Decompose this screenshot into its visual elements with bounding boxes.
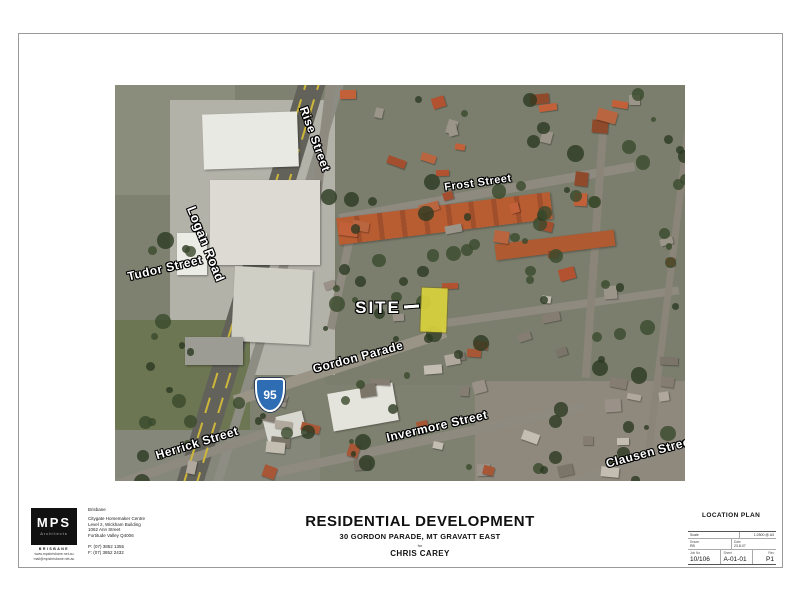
map-tree <box>540 466 548 474</box>
date-value: 23.8.07 <box>734 544 774 548</box>
drawn-date-row: Drawn RB Date 23.8.07 <box>688 539 776 550</box>
map-tree <box>260 413 266 419</box>
sheet-label: Sheet <box>723 551 750 555</box>
map-tree <box>564 187 570 193</box>
drawing-name: LOCATION PLAN <box>702 512 776 519</box>
scale-label: Scale <box>688 532 740 538</box>
mps-logo: MPS Architects <box>31 508 77 545</box>
map-building <box>202 111 299 169</box>
map-tree <box>522 238 528 244</box>
map-tree <box>680 174 685 185</box>
map-tree <box>172 394 186 408</box>
map-tree <box>184 415 197 428</box>
map-tree <box>151 333 158 340</box>
map-tree <box>666 243 672 249</box>
map-tree <box>281 427 293 439</box>
map-tree <box>301 425 315 439</box>
map-tree <box>323 326 328 331</box>
map-tree <box>148 418 155 425</box>
map-tree <box>137 450 149 462</box>
map-house <box>660 376 675 388</box>
map-house <box>575 172 589 187</box>
scale-value: 1:2500 @ A3 <box>740 532 776 538</box>
scale-row: Scale 1:2500 @ A3 <box>688 532 776 539</box>
site-label: SITE <box>355 298 401 318</box>
map-tree <box>640 320 655 335</box>
map-tree <box>148 246 157 255</box>
map-tree <box>516 181 526 191</box>
map-tree <box>356 380 365 389</box>
map-house <box>265 441 285 454</box>
map-tree <box>424 174 440 190</box>
project-for-label: for <box>270 543 570 548</box>
map-tree <box>339 264 350 275</box>
map-tree <box>636 155 651 170</box>
map-tree <box>157 232 174 249</box>
map-tree <box>526 276 534 284</box>
map-tree <box>446 246 461 261</box>
job-value: 10/106 <box>690 556 718 563</box>
rev-cell: Rev P1 <box>753 550 776 564</box>
map-tree <box>417 266 429 278</box>
drawn-cell: Drawn RB <box>688 539 732 549</box>
job-label: Job No <box>690 551 718 555</box>
map-tree <box>355 276 366 287</box>
job-sheet-rev-row: Job No 10/106 Sheet A-01-01 Rev P1 <box>688 550 776 564</box>
firm-web-line1: www.mpsbrisbane.net.au <box>26 552 82 557</box>
map-tree <box>622 140 636 154</box>
map-house <box>605 398 622 412</box>
map-tree <box>651 117 656 122</box>
drawing-info-block: LOCATION PLAN Scale 1:2500 @ A3 Drawn RB… <box>688 512 776 565</box>
rev-label: Rev <box>755 551 774 555</box>
sheet-cell: Sheet A-01-01 <box>721 550 753 564</box>
drawn-value: RB <box>690 544 729 548</box>
route-number-label: 95 <box>263 388 276 402</box>
job-cell: Job No 10/106 <box>688 550 721 564</box>
firm-web-lines: www.mpsbrisbane.net.au mail@mpsbrisbane.… <box>26 552 82 561</box>
map-house <box>339 90 355 99</box>
firm-fax: F: (07) 3852 2432 <box>88 550 145 556</box>
firm-web-line2: mail@mpsbrisbane.net.au <box>26 557 82 562</box>
site-highlight <box>420 288 448 333</box>
map-tree <box>355 434 371 450</box>
map-tree <box>454 350 463 359</box>
firm-address-line1: Citygate Homemaker Centre <box>88 516 145 522</box>
map-tree <box>664 135 673 144</box>
route-95-shield: 95 <box>255 378 285 412</box>
map-tree <box>525 266 535 276</box>
project-title-block: RESIDENTIAL DEVELOPMENT 30 GORDON PARADE… <box>270 513 570 558</box>
sheet-value: A-01-01 <box>723 556 750 563</box>
map-tree <box>329 296 345 312</box>
rev-value: P1 <box>755 556 774 563</box>
project-client: CHRIS CAREY <box>270 549 570 558</box>
drawing-info-table: Scale 1:2500 @ A3 Drawn RB Date 23.8.07 … <box>688 531 776 565</box>
map-building <box>210 180 320 265</box>
mps-logo-caption: BRISBANE <box>28 547 80 551</box>
map-house <box>659 391 670 401</box>
firm-office: Brisbane <box>88 507 145 513</box>
aerial-map: 95 Rise Street Frost Street Logan Road T… <box>115 85 685 481</box>
drawing-sheet: 95 Rise Street Frost Street Logan Road T… <box>0 0 800 600</box>
project-address: 30 GORDON PARADE, MT GRAVATT EAST <box>270 532 570 541</box>
map-tree <box>631 476 640 481</box>
map-tree <box>614 328 626 340</box>
map-tree <box>233 397 245 409</box>
map-tree <box>418 206 434 222</box>
map-tree <box>523 93 537 107</box>
map-tree <box>672 303 679 310</box>
map-tree <box>341 396 351 406</box>
map-house <box>432 441 443 450</box>
date-cell: Date 23.8.07 <box>732 539 776 549</box>
map-tree <box>372 254 385 267</box>
mps-logo-text: MPS <box>31 515 77 530</box>
map-house <box>617 438 629 445</box>
map-tree <box>359 455 375 471</box>
map-house <box>460 386 469 397</box>
map-tree <box>461 110 468 117</box>
firm-address-block: Brisbane Citygate Homemaker Centre Level… <box>88 507 145 556</box>
map-tree <box>427 249 440 262</box>
firm-address-line4: Fortitude Valley Q4006 <box>88 533 145 539</box>
map-tree <box>155 314 171 330</box>
map-tree <box>510 233 519 242</box>
map-tree <box>632 88 645 101</box>
map-house <box>493 230 510 244</box>
map-tree <box>538 206 552 220</box>
map-tree <box>598 356 605 363</box>
map-tree <box>665 257 676 268</box>
map-tree <box>166 387 173 394</box>
map-house <box>582 436 593 445</box>
map-tree <box>537 122 550 135</box>
project-title: RESIDENTIAL DEVELOPMENT <box>270 513 570 530</box>
map-house <box>509 202 521 214</box>
map-tree <box>351 451 356 456</box>
map-building <box>231 266 313 345</box>
map-tree <box>466 464 472 470</box>
map-house <box>660 356 678 365</box>
map-tree <box>631 367 648 384</box>
map-tree <box>464 213 472 221</box>
map-tree <box>368 197 377 206</box>
map-tree <box>351 224 360 233</box>
map-tree <box>659 228 670 239</box>
mps-logo-subtext: Architects <box>31 531 77 536</box>
map-house <box>424 364 443 374</box>
map-tree <box>404 372 410 378</box>
